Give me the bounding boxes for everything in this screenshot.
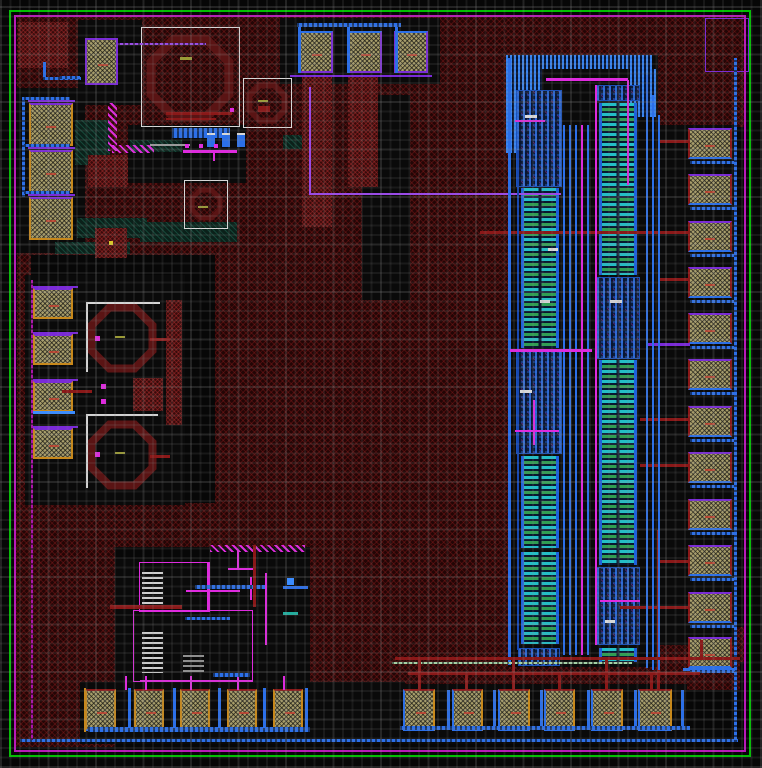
seal-ring-magenta (14, 15, 746, 752)
layout-canvas[interactable] (0, 0, 762, 768)
